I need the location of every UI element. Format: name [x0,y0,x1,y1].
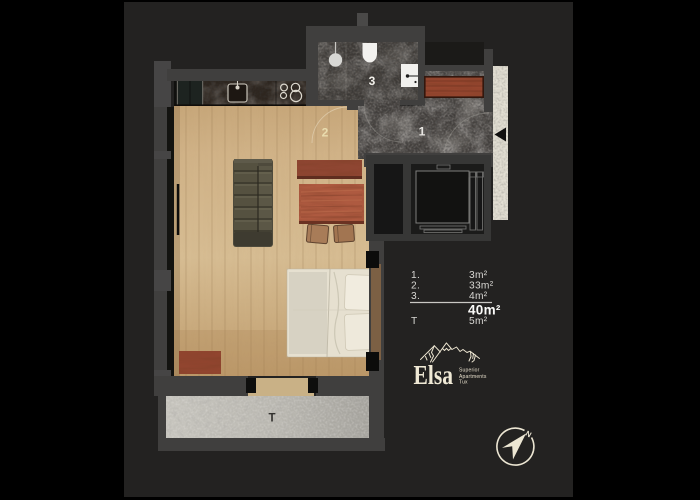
svg-text:Superior: Superior [459,368,480,374]
svg-text:3.: 3. [411,291,420,302]
svg-text:1.: 1. [411,270,420,281]
svg-text:T: T [268,413,275,425]
svg-text:Elsa: Elsa [414,360,454,390]
svg-text:3m²: 3m² [469,270,488,281]
svg-text:3: 3 [369,74,376,88]
svg-text:Tux: Tux [459,380,468,386]
svg-text:T: T [411,316,418,327]
svg-text:4m²: 4m² [469,291,488,302]
svg-text:1: 1 [419,125,426,139]
svg-text:33m²: 33m² [469,281,494,292]
svg-text:5m²: 5m² [469,316,488,327]
svg-text:40m²: 40m² [468,303,501,318]
svg-text:2.: 2. [411,281,420,292]
svg-text:2: 2 [322,126,329,140]
